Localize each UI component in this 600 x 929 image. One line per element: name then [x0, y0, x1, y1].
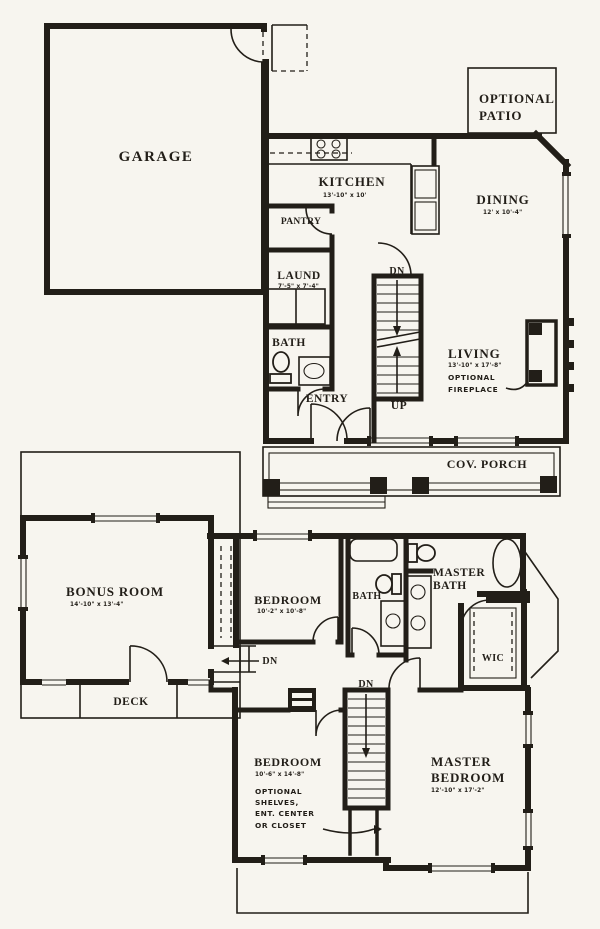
sink-vanity	[381, 601, 406, 646]
left-arrow	[221, 657, 229, 665]
soaking-tub	[493, 539, 521, 587]
toilet	[270, 352, 291, 383]
patio-label-line1: OPTIONAL	[479, 91, 555, 106]
window	[561, 172, 571, 238]
dining-dims: 12' x 10'-4"	[483, 210, 522, 216]
pantry-label: PANTRY	[281, 217, 321, 227]
closet-shelf-dashes	[221, 546, 231, 638]
bedroom-lower: BEDROOM 10'-6" x 14'-8" OPTIONAL SHELVES…	[254, 755, 382, 834]
stoop	[266, 25, 307, 140]
bonus-room-dims: 14'-10" x 13'-4"	[70, 602, 124, 608]
master-bath-label-line1: MASTER	[433, 567, 485, 579]
up-arrow	[393, 346, 401, 356]
porch-label: COV. PORCH	[447, 457, 528, 471]
stairs-main: DN UP	[374, 243, 421, 412]
stairs-up-label: UP	[391, 400, 407, 412]
master-bedroom-dims: 12'-10" x 17'-2"	[431, 788, 485, 794]
window	[91, 513, 160, 523]
double-sink-vanity	[407, 576, 431, 648]
bedroom-upper: BEDROOM 10'-2" x 10'-8"	[236, 536, 341, 642]
wic-label: WIC	[482, 653, 504, 664]
patio-label-line2: PATIO	[479, 108, 522, 123]
first-floor-plan: GARAGE	[47, 25, 574, 508]
deck: DECK	[80, 682, 240, 718]
garage-label: GARAGE	[119, 149, 194, 165]
refrigerator	[412, 166, 439, 234]
second-floor-plan: BONUS ROOM 14'-10" x 13'-4" DECK BEDR	[18, 452, 558, 913]
porch-steps	[268, 496, 385, 508]
door-arc	[352, 628, 379, 655]
master-bedroom-label-line1: MASTER	[431, 754, 491, 769]
window	[367, 436, 433, 446]
lower-roof-outline	[237, 868, 528, 913]
floor-plan-drawing: GARAGE	[0, 0, 600, 929]
window	[18, 555, 28, 611]
hall: DN	[214, 646, 461, 736]
option-note-line1: OPTIONAL	[255, 787, 302, 796]
door-arc	[231, 29, 263, 62]
floor-plan-sheet: GARAGE	[0, 0, 600, 929]
linen-closet	[288, 688, 316, 712]
bonus-door	[129, 646, 168, 686]
toilet	[408, 544, 435, 562]
entry-label: ENTRY	[306, 393, 349, 405]
option-note-line2: SHELVES,	[255, 798, 299, 807]
master-bath-label-line2: BATH	[433, 580, 467, 592]
window	[188, 678, 210, 686]
porch-post	[263, 479, 280, 496]
master-bath: MASTER BATH	[407, 536, 527, 648]
window	[42, 678, 66, 686]
laundry-label: LAUND	[277, 270, 320, 282]
covered-porch: COV. PORCH	[263, 447, 560, 508]
under-stair-closet	[350, 808, 377, 854]
option-note-line3: ENT. CENTER	[255, 809, 315, 818]
option-note-line4: OR CLOSET	[255, 821, 307, 830]
pantry: PANTRY	[266, 206, 332, 250]
bedroom-lower-dims: 10'-6" x 14'-8"	[255, 772, 304, 778]
front-door-arc	[311, 404, 347, 441]
master-bedroom-label-line2: BEDROOM	[431, 770, 505, 785]
dining-label: DINING	[476, 192, 529, 207]
bay-outline	[523, 549, 558, 678]
down-arrow	[393, 326, 401, 336]
fireplace-note-line2: FIREPLACE	[448, 385, 498, 394]
bath-label: BATH	[272, 337, 306, 349]
living: LIVING 13'-10" x 17'-8" OPTIONAL FIREPLA…	[448, 318, 574, 394]
bedroom-upper-dims: 10'-2" x 10'-8"	[257, 609, 306, 615]
porch-post	[540, 476, 557, 493]
master-bedroom: MASTER BEDROOM 12'-10" x 17'-2"	[431, 754, 505, 794]
window	[428, 863, 495, 873]
deck-label: DECK	[113, 696, 148, 708]
garage: GARAGE	[47, 26, 269, 292]
porch-post	[412, 477, 429, 494]
door-arc	[461, 600, 489, 628]
master-door-arc	[389, 658, 420, 690]
bedroom-lower-label: BEDROOM	[254, 755, 322, 769]
steps	[214, 646, 256, 672]
window	[261, 855, 307, 865]
sink-vanity	[299, 357, 330, 385]
optional-patio: OPTIONAL PATIO	[468, 68, 556, 133]
window	[523, 711, 533, 748]
window	[253, 530, 312, 541]
bedroom-upper-label: BEDROOM	[254, 593, 322, 607]
entry: ENTRY	[306, 393, 374, 441]
stairs2-dn-label: DN	[358, 679, 374, 690]
door-arc	[316, 710, 342, 736]
stairs-second: DN	[345, 679, 388, 854]
dining: DINING 12' x 10'-4"	[476, 192, 529, 216]
bonus-room-label: BONUS ROOM	[66, 584, 164, 599]
kitchen-dims: 13'-10" x 10'	[323, 193, 367, 199]
hall-dn-label: DN	[262, 656, 278, 667]
closet-door-arc	[337, 408, 370, 441]
door-arc	[313, 617, 338, 642]
bonus-room: BONUS ROOM 14'-10" x 13'-4"	[18, 513, 211, 686]
stairs-dn-label: DN	[389, 266, 405, 277]
hall-bath-label: BATH	[352, 591, 381, 602]
leader-line	[506, 381, 528, 389]
window	[454, 436, 519, 446]
living-dims: 13'-10" x 17'-8"	[448, 363, 502, 369]
fireplace-note-line1: OPTIONAL	[448, 373, 495, 382]
kitchen-label: KITCHEN	[318, 174, 385, 189]
stove-cooktop	[311, 137, 347, 160]
porch-post	[370, 477, 387, 494]
bathtub	[350, 539, 397, 561]
living-label: LIVING	[448, 346, 500, 361]
window	[523, 809, 533, 850]
washer-dryer	[268, 289, 325, 324]
